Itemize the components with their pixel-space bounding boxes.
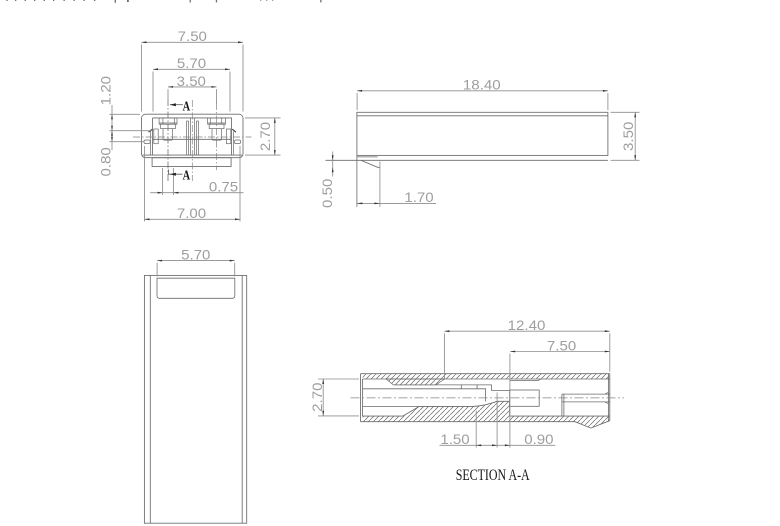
svg-text:1.50: 1.50 (440, 432, 470, 447)
svg-text:A: A (183, 99, 191, 114)
svg-text:0.75: 0.75 (209, 180, 239, 195)
svg-text:SECTION A-A: SECTION A-A (456, 467, 531, 484)
svg-text:7.00: 7.00 (177, 206, 207, 221)
svg-text:5.70: 5.70 (181, 247, 211, 262)
svg-text:0.50: 0.50 (320, 178, 335, 208)
svg-text:3.50: 3.50 (177, 74, 207, 89)
svg-text:3.50: 3.50 (621, 121, 636, 151)
svg-text:7.50: 7.50 (178, 29, 208, 44)
svg-text:12.40: 12.40 (508, 318, 546, 333)
svg-text:0.90: 0.90 (524, 432, 554, 447)
svg-text:18.40: 18.40 (463, 78, 501, 93)
svg-text:A: A (183, 168, 191, 183)
svg-text:2.70: 2.70 (310, 382, 325, 412)
svg-text:5.70: 5.70 (177, 56, 207, 71)
svg-text:1.70: 1.70 (404, 190, 434, 205)
svg-text:1.20: 1.20 (99, 76, 114, 106)
svg-text:7.50: 7.50 (547, 338, 577, 353)
svg-text:2.70: 2.70 (258, 122, 273, 152)
svg-text:0.80: 0.80 (99, 147, 114, 177)
